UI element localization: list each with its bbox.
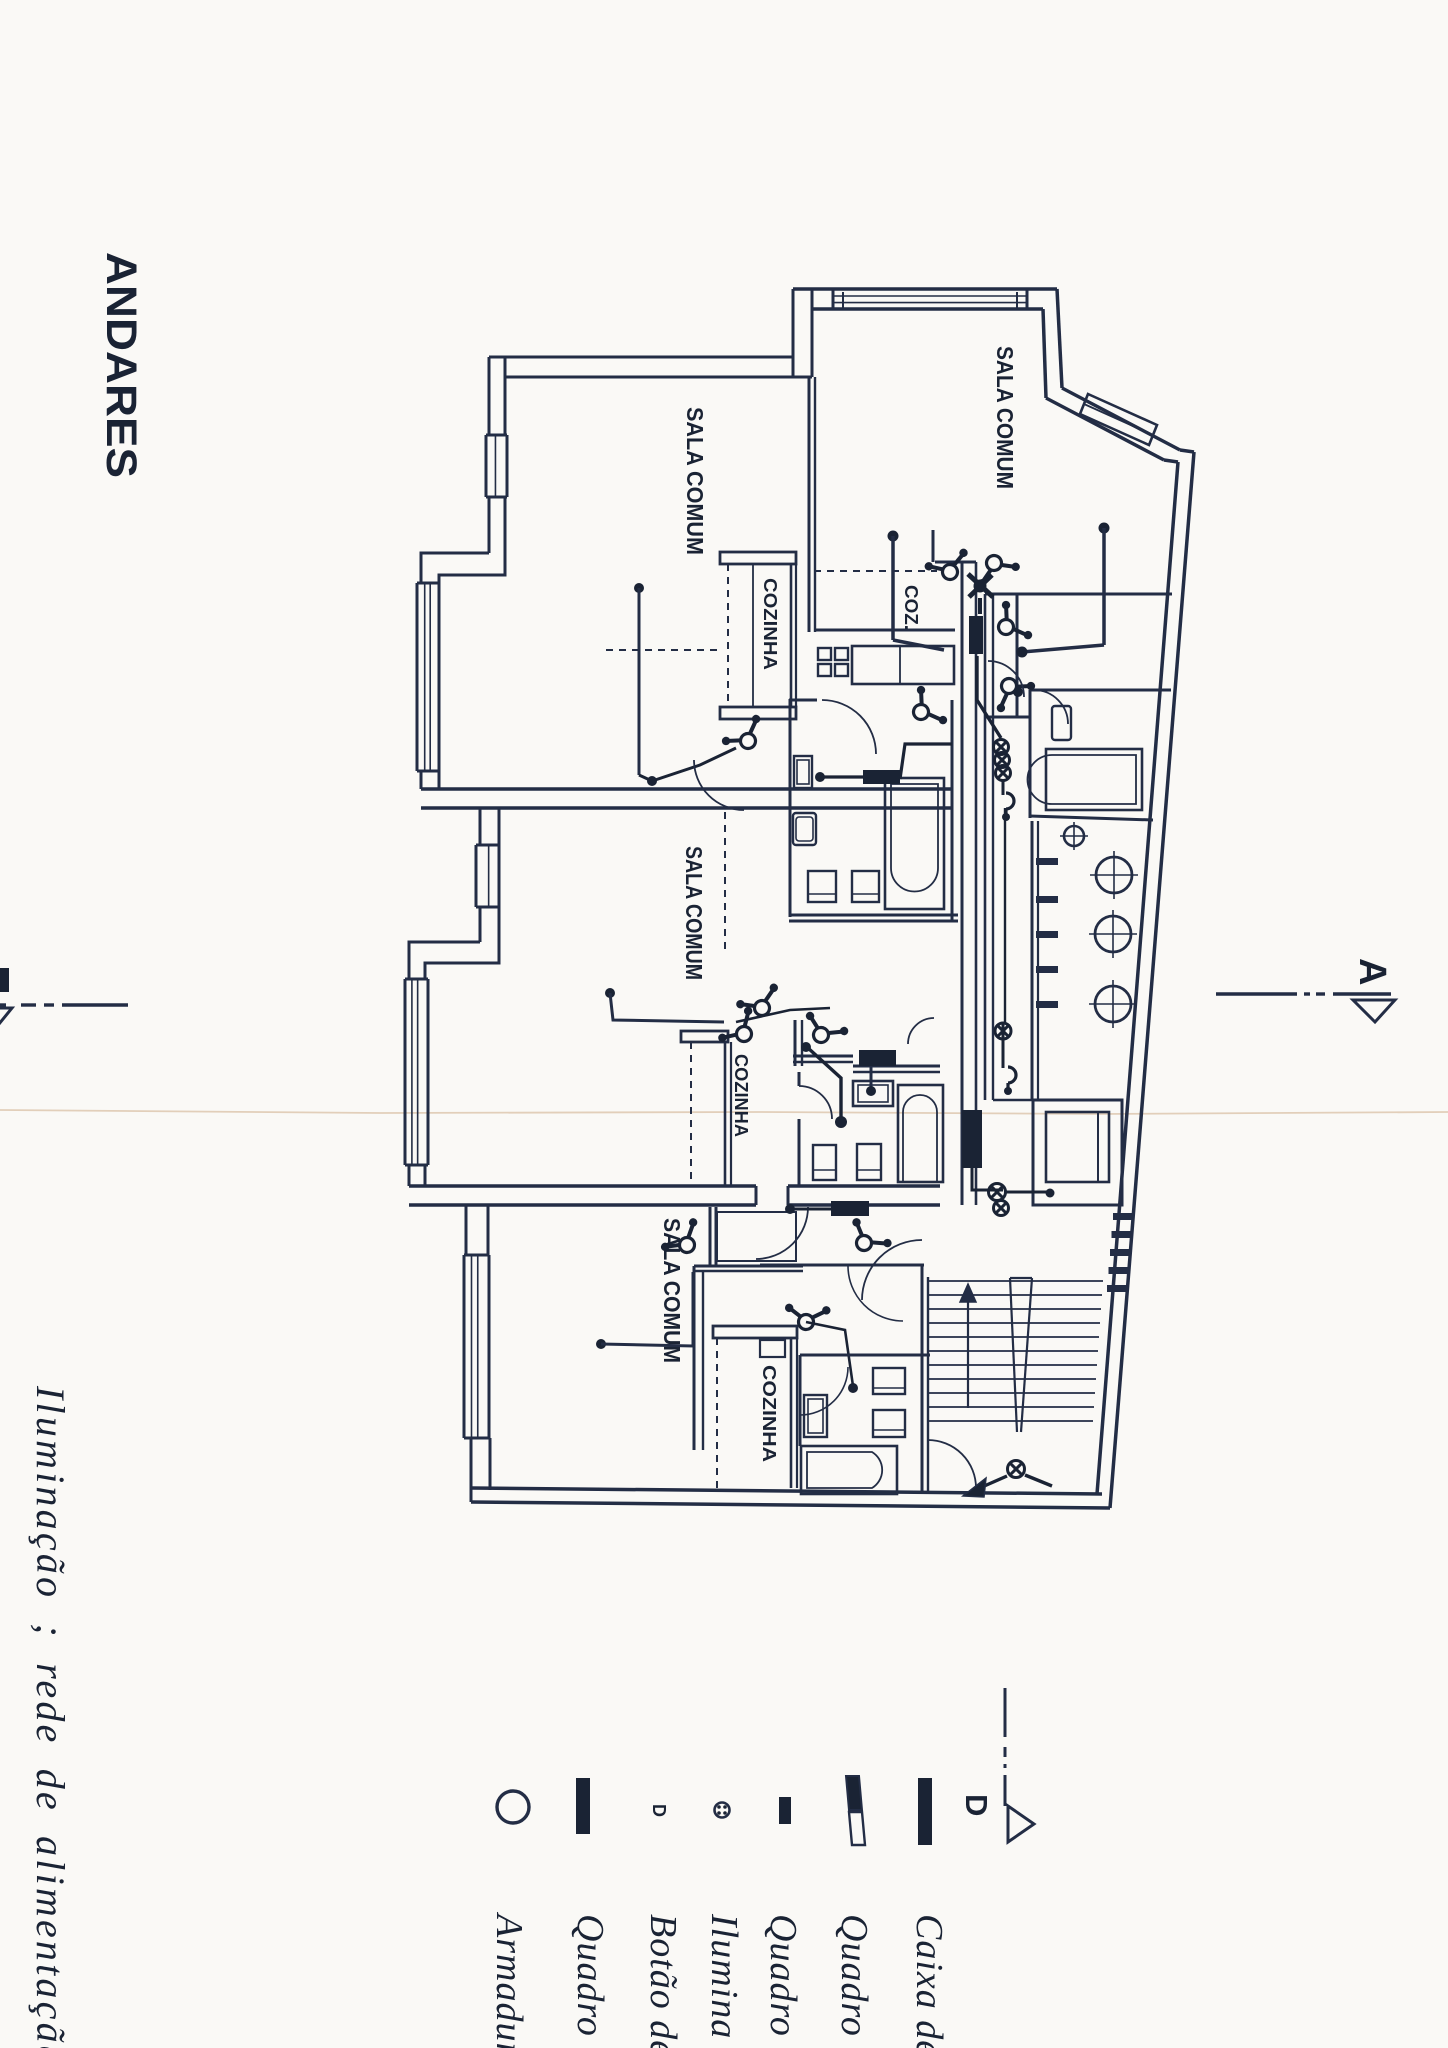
svg-text:Ilumina: Ilumina <box>703 1913 745 2039</box>
svg-text:COZINHA: COZINHA <box>760 578 780 670</box>
svg-text:Quadro col: Quadro col <box>762 1914 804 2048</box>
svg-text:A: A <box>1351 958 1393 985</box>
svg-text:COZ.: COZ. <box>901 585 921 630</box>
svg-text:Armadura: Armadura <box>488 1911 530 2048</box>
svg-text:SALA COMUM: SALA COMUM <box>681 846 707 980</box>
svg-text:SALA COMUM: SALA COMUM <box>992 346 1018 489</box>
svg-text:Caixa de escada: Caixa de escada <box>908 1914 950 2048</box>
svg-text:SALA COMUM: SALA COMUM <box>682 407 708 555</box>
svg-text:COZINHA: COZINHA <box>759 1365 779 1462</box>
svg-text:Quadro: Quadro <box>569 1914 611 2037</box>
svg-text:D: D <box>649 1804 669 1817</box>
svg-text:Botão de pr: Botão de pr <box>642 1914 684 2048</box>
svg-text:Quadro de s: Quadro de s <box>833 1914 875 2048</box>
svg-text:ANDARES: ANDARES <box>97 252 145 478</box>
svg-text:COZINHA: COZINHA <box>731 1054 751 1137</box>
svg-text:Iluminação ; rede de alimentaç: Iluminação ; rede de alimentação <box>28 1385 73 2048</box>
svg-text:D: D <box>959 1794 994 1816</box>
